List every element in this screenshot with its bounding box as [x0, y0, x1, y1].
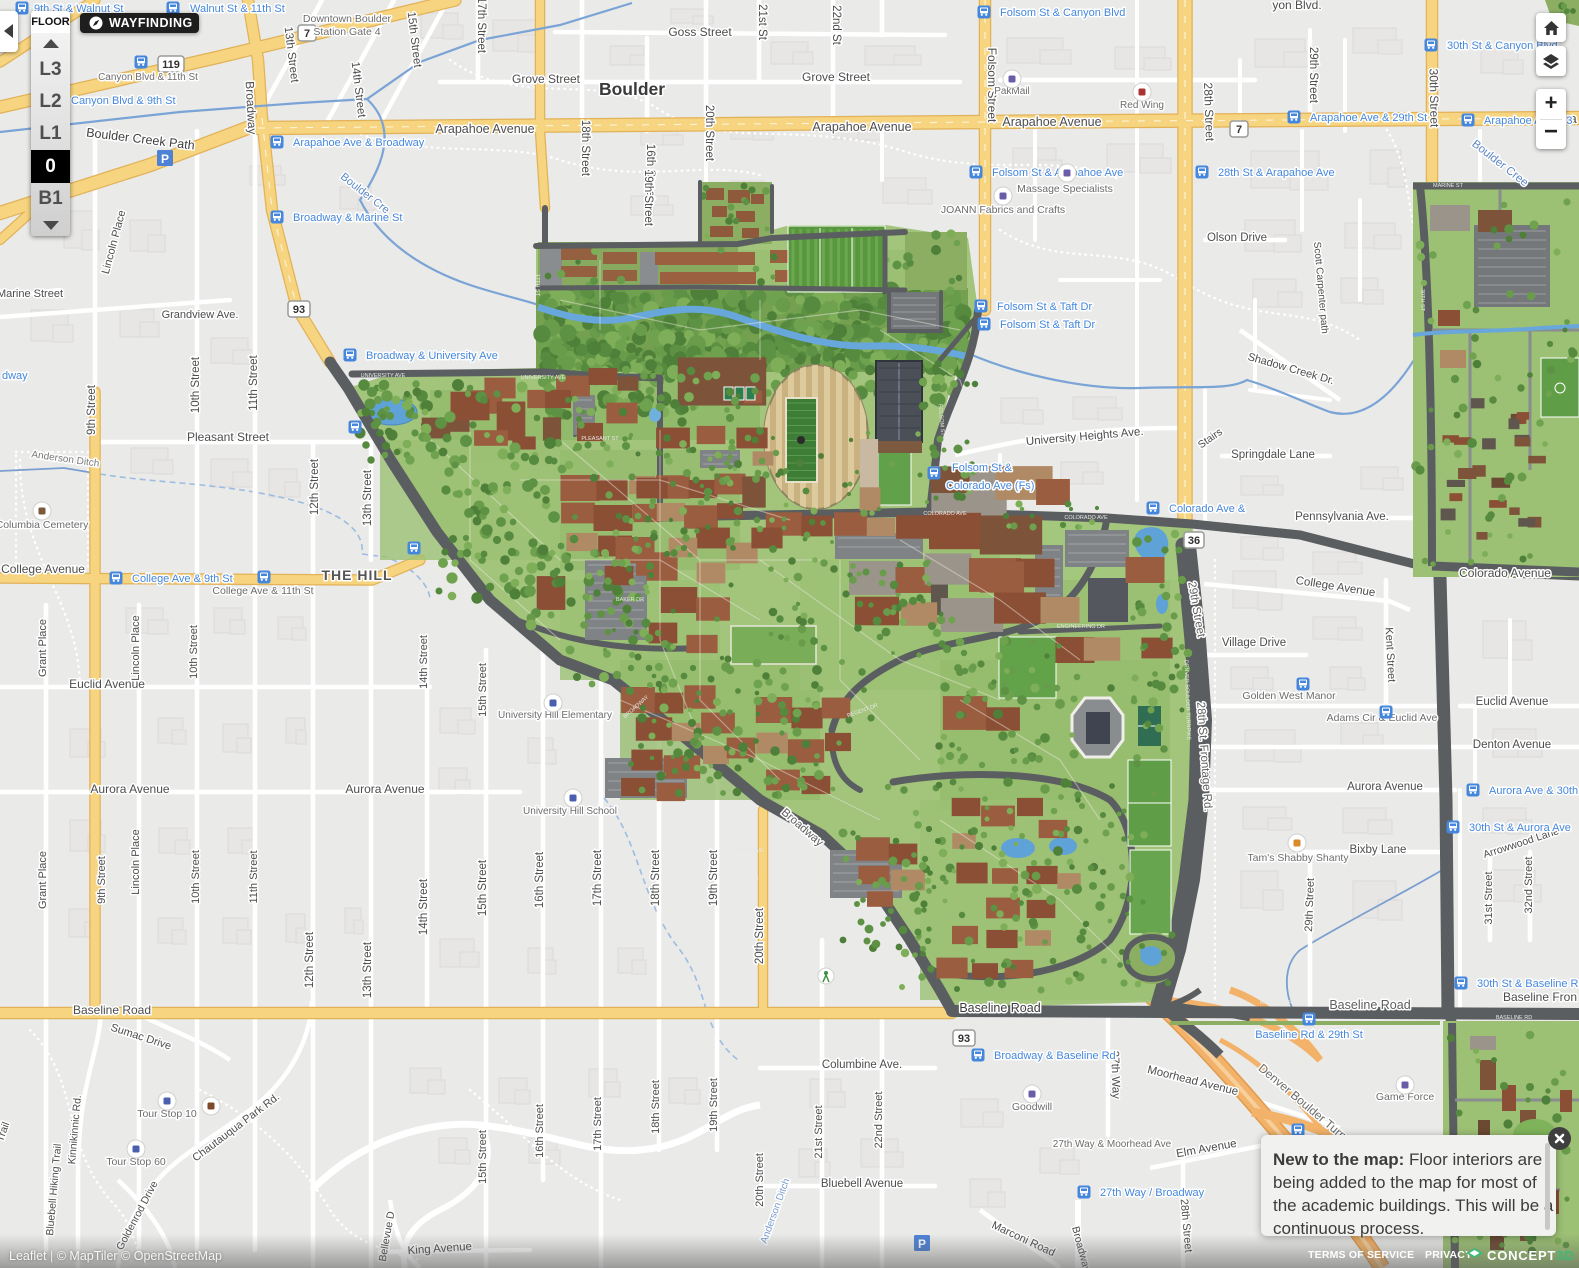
- svg-text:15th Street: 15th Street: [477, 663, 489, 717]
- svg-text:Broadway: Broadway: [779, 806, 826, 849]
- svg-text:Broadway & Marine St: Broadway & Marine St: [293, 212, 402, 224]
- svg-text:BASELINE RD: BASELINE RD: [1496, 1015, 1532, 1021]
- svg-text:BAKER DR: BAKER DR: [616, 597, 644, 603]
- svg-text:Denton Avenue: Denton Avenue: [1473, 739, 1551, 751]
- svg-text:20th Street: 20th Street: [754, 1153, 766, 1207]
- svg-text:UNIVERSITY AVE: UNIVERSITY AVE: [361, 373, 406, 379]
- svg-text:Baseline Fron: Baseline Fron: [1503, 990, 1577, 1004]
- svg-text:Marine Street: Marine Street: [0, 288, 63, 300]
- svg-text:Boulder Cre: Boulder Cre: [338, 171, 392, 217]
- svg-text:Sumac Drive: Sumac Drive: [109, 1022, 173, 1053]
- svg-text:Station Gate 4: Station Gate 4: [313, 26, 380, 38]
- svg-text:13th Street: 13th Street: [362, 941, 374, 998]
- svg-text:ENGINEERING DR: ENGINEERING DR: [1057, 624, 1105, 630]
- svg-text:Grant Place: Grant Place: [37, 619, 49, 677]
- svg-text:Pleasant Street: Pleasant Street: [187, 430, 270, 444]
- svg-text:14th Street: 14th Street: [418, 878, 430, 935]
- svg-text:13th?: 13th?: [1137, 34, 1138, 35]
- svg-text:18th Street: 18th Street: [579, 120, 591, 177]
- svg-text:Tam's Shabby Shanty: Tam's Shabby Shanty: [1247, 852, 1349, 864]
- svg-text:Kinnikinnic Rd.: Kinnikinnic Rd.: [66, 1095, 84, 1165]
- svg-text:31st Street: 31st Street: [1483, 871, 1495, 924]
- svg-text:17th Street: 17th Street: [592, 849, 604, 906]
- svg-text:Folsom St &: Folsom St &: [952, 462, 1013, 474]
- svg-text:Massage Specialists: Massage Specialists: [1017, 183, 1113, 195]
- svg-text:College Avenue: College Avenue: [1295, 575, 1376, 599]
- svg-text:University Heights Ave.: University Heights Ave.: [1025, 426, 1144, 448]
- svg-text:29th Street: 29th Street: [1307, 47, 1319, 104]
- svg-text:22nd Street: 22nd Street: [873, 1092, 885, 1149]
- svg-text:Aurora Avenue: Aurora Avenue: [345, 782, 424, 796]
- svg-text:15th Street: 15th Street: [477, 1130, 489, 1184]
- svg-text:32nd Street: 32nd Street: [1523, 857, 1535, 914]
- svg-text:Grove Street: Grove Street: [512, 72, 581, 86]
- svg-text:10th Street: 10th Street: [190, 356, 202, 413]
- svg-text:Moorhead Avenue: Moorhead Avenue: [1146, 1064, 1239, 1098]
- svg-text:11th Street: 11th Street: [248, 851, 260, 904]
- svg-text:14th Street: 14th Street: [418, 635, 430, 689]
- svg-text:13th Street: 13th Street: [362, 469, 374, 526]
- svg-text:17th Street: 17th Street: [592, 1097, 604, 1151]
- svg-text:10th Street: 10th Street: [188, 625, 200, 679]
- svg-text:Boulder Cree: Boulder Cree: [1469, 138, 1530, 189]
- svg-text:dway: dway: [2, 370, 28, 382]
- svg-text:Boulder Creek Path: Boulder Creek Path: [85, 125, 195, 152]
- svg-text:20th Street: 20th Street: [754, 907, 766, 964]
- svg-text:Shadow Creek Dr.: Shadow Creek Dr.: [1246, 351, 1335, 387]
- svg-text:30th St & Baseline Rd: 30th St & Baseline Rd: [1477, 978, 1579, 990]
- svg-text:Arapahoe Avenue: Arapahoe Avenue: [435, 122, 534, 136]
- svg-text:Arapahoe Ave & Broadway: Arapahoe Ave & Broadway: [293, 137, 425, 149]
- svg-text:16th Street: 16th Street: [534, 851, 546, 908]
- svg-text:Anderson Ditch: Anderson Ditch: [31, 449, 100, 469]
- svg-text:Pennsylvania Ave.: Pennsylvania Ave.: [1295, 511, 1389, 523]
- svg-text:Trail: Trail: [0, 1121, 12, 1144]
- svg-text:30th Street: 30th Street: [1426, 68, 1441, 128]
- svg-text:29th Street: 29th Street: [1185, 581, 1207, 639]
- svg-text:Lincoln Place: Lincoln Place: [130, 829, 142, 894]
- svg-text:COLORADO AVE: COLORADO AVE: [1064, 515, 1108, 521]
- svg-text:College Ave & 9th St: College Ave & 9th St: [132, 573, 233, 585]
- svg-text:BASELINE RD: BASELINE RD: [1260, 1000, 1296, 1006]
- svg-text:28th St. Frontage Rd.: 28th St. Frontage Rd.: [1194, 702, 1214, 813]
- svg-text:Arapahoe Avenue: Arapahoe Avenue: [812, 120, 911, 134]
- svg-text:yon Blvd.: yon Blvd.: [1272, 0, 1321, 12]
- svg-text:JOANN Fabrics and Crafts: JOANN Fabrics and Crafts: [941, 204, 1065, 216]
- svg-text:Golden West Manor: Golden West Manor: [1242, 690, 1336, 702]
- svg-text:Folsom St & Canyon Blvd: Folsom St & Canyon Blvd: [1000, 7, 1125, 19]
- svg-text:Goss Street: Goss Street: [668, 25, 732, 39]
- svg-text:Baseline Road: Baseline Road: [73, 1003, 151, 1017]
- svg-text:Baseline Road: Baseline Road: [1329, 998, 1410, 1012]
- svg-text:Columbia Cemetery: Columbia Cemetery: [0, 519, 89, 531]
- svg-text:Elm Avenue: Elm Avenue: [1175, 1138, 1237, 1160]
- svg-text:Red Wing: Red Wing: [1120, 100, 1164, 111]
- svg-text:27th Way & Moorhead Ave: 27th Way & Moorhead Ave: [1053, 1139, 1172, 1150]
- svg-text:21st Street: 21st Street: [813, 1105, 825, 1158]
- svg-text:9th Street: 9th Street: [86, 384, 98, 435]
- svg-text:Aurora Ave & 30th S: Aurora Ave & 30th S: [1489, 785, 1579, 797]
- svg-text:28th St & Arapahoe Ave: 28th St & Arapahoe Ave: [1218, 167, 1335, 179]
- svg-text:THE HILL: THE HILL: [322, 567, 393, 583]
- svg-text:Scott Carpenter path: Scott Carpenter path: [1311, 241, 1330, 334]
- svg-text:Euclid Avenue: Euclid Avenue: [1476, 696, 1549, 708]
- svg-text:Village Drive: Village Drive: [1222, 637, 1286, 649]
- svg-text:Grandview Ave.: Grandview Ave.: [162, 309, 239, 321]
- svg-text:REGENT DR: REGENT DR: [846, 703, 878, 720]
- svg-text:Bluebell Hiking Trail: Bluebell Hiking Trail: [44, 1143, 64, 1236]
- svg-text:COLORADO AVE: COLORADO AVE: [720, 848, 764, 854]
- svg-text:18th Street: 18th Street: [650, 849, 662, 906]
- svg-text:Colorado Avenue: Colorado Avenue: [1459, 566, 1551, 580]
- svg-text:Baseline Rd & 29th St: Baseline Rd & 29th St: [1255, 1029, 1363, 1041]
- svg-text:30TH ST: 30TH ST: [1419, 289, 1425, 312]
- svg-text:Grant Place: Grant Place: [37, 851, 49, 909]
- svg-text:16th Street: 16th Street: [534, 1104, 546, 1158]
- svg-text:University Hill School: University Hill School: [523, 806, 617, 817]
- svg-text:21st St: 21st St: [756, 4, 768, 41]
- svg-text:Olson Drive: Olson Drive: [1207, 232, 1267, 244]
- svg-text:COLORADO AVE: COLORADO AVE: [923, 511, 967, 517]
- svg-text:Kent Street: Kent Street: [1383, 627, 1398, 683]
- svg-text:Colorado Ave &: Colorado Ave &: [1169, 503, 1246, 515]
- svg-text:12th Street: 12th Street: [304, 931, 316, 988]
- svg-text:19th Street: 19th Street: [642, 170, 654, 227]
- svg-text:UNIVERSITY AVE: UNIVERSITY AVE: [521, 375, 566, 381]
- svg-text:Downtown Boulder: Downtown Boulder: [303, 13, 392, 25]
- svg-text:30th St & Aurora Ave: 30th St & Aurora Ave: [1469, 822, 1571, 834]
- svg-text:Lincoln Place: Lincoln Place: [100, 209, 129, 275]
- svg-text:20th Street: 20th Street: [703, 105, 715, 162]
- svg-text:Walnut St & 11th St: Walnut St & 11th St: [190, 3, 285, 15]
- svg-text:FOLSOM ST: FOLSOM ST: [937, 404, 946, 437]
- svg-text:Lincoln Place: Lincoln Place: [130, 615, 142, 680]
- svg-text:College Ave & 11th St: College Ave & 11th St: [212, 585, 313, 597]
- svg-text:17TH ST: 17TH ST: [534, 274, 540, 297]
- svg-text:19th Street: 19th Street: [708, 1078, 720, 1132]
- svg-text:Broadway & University Ave: Broadway & University Ave: [366, 350, 498, 362]
- svg-text:College Avenue: College Avenue: [1, 562, 85, 576]
- svg-text:19th Street: 19th Street: [708, 849, 720, 906]
- svg-text:28th Street: 28th Street: [1201, 82, 1217, 142]
- svg-text:Folsom St & Taft Dr: Folsom St & Taft Dr: [1000, 319, 1095, 331]
- svg-text:9th Street: 9th Street: [96, 856, 108, 904]
- svg-text:Canyon Blvd & 11th St: Canyon Blvd & 11th St: [98, 72, 198, 83]
- svg-text:P: P: [161, 152, 169, 166]
- svg-text:Columbine Ave.: Columbine Ave.: [822, 1059, 902, 1071]
- svg-text:Bixby Lane: Bixby Lane: [1350, 844, 1407, 856]
- svg-text:Broadway: Broadway: [243, 81, 260, 135]
- svg-text:Colorado Ave (Fs): Colorado Ave (Fs): [946, 480, 1034, 492]
- svg-text:BROADWAY: BROADWAY: [623, 694, 651, 720]
- svg-text:12th Street: 12th Street: [309, 458, 321, 515]
- svg-text:Arapahoe Avenue: Arapahoe Avenue: [1002, 115, 1101, 129]
- svg-text:Stairs: Stairs: [1196, 426, 1225, 451]
- svg-text:29th Street: 29th Street: [1303, 878, 1317, 932]
- svg-text:18th Street: 18th Street: [650, 1080, 662, 1134]
- svg-text:Arapahoe Ave & 29th St: Arapahoe Ave & 29th St: [1310, 112, 1427, 124]
- svg-text:13th Street: 13th Street: [282, 26, 301, 84]
- svg-text:17th Street: 17th Street: [475, 0, 487, 54]
- svg-text:PLEASANT ST: PLEASANT ST: [581, 436, 619, 442]
- svg-text:14th Street: 14th Street: [349, 61, 368, 119]
- svg-text:15th Street: 15th Street: [477, 859, 489, 916]
- svg-text:DENVER BOULDER TURNPIKE: DENVER BOULDER TURNPIKE: [1183, 660, 1192, 741]
- svg-text:Canyon Blvd & 9th St: Canyon Blvd & 9th St: [71, 95, 176, 107]
- svg-text:MARINE ST: MARINE ST: [1433, 183, 1464, 189]
- svg-text:15th Street: 15th Street: [405, 11, 424, 69]
- svg-text:BROADWAY: BROADWAY: [733, 875, 761, 900]
- svg-text:Folsom St & Taft Dr: Folsom St & Taft Dr: [997, 301, 1092, 313]
- svg-text:Grove Street: Grove Street: [802, 70, 871, 84]
- svg-text:Springdale Lane: Springdale Lane: [1231, 449, 1315, 461]
- svg-text:Baseline Road: Baseline Road: [959, 1001, 1040, 1015]
- svg-text:Aurora Avenue: Aurora Avenue: [1347, 781, 1423, 793]
- svg-text:Bluebell Avenue: Bluebell Avenue: [821, 1178, 903, 1190]
- svg-text:Aurora Avenue: Aurora Avenue: [90, 782, 169, 796]
- svg-text:11th Street: 11th Street: [248, 354, 260, 410]
- svg-text:22nd St: 22nd St: [830, 5, 842, 45]
- svg-text:Broadway & Baseline Rd: Broadway & Baseline Rd: [994, 1050, 1116, 1062]
- svg-text:27th Way / Broadway: 27th Way / Broadway: [1100, 1187, 1205, 1199]
- svg-text:Boulder: Boulder: [599, 79, 665, 99]
- svg-text:10th Street: 10th Street: [190, 850, 202, 904]
